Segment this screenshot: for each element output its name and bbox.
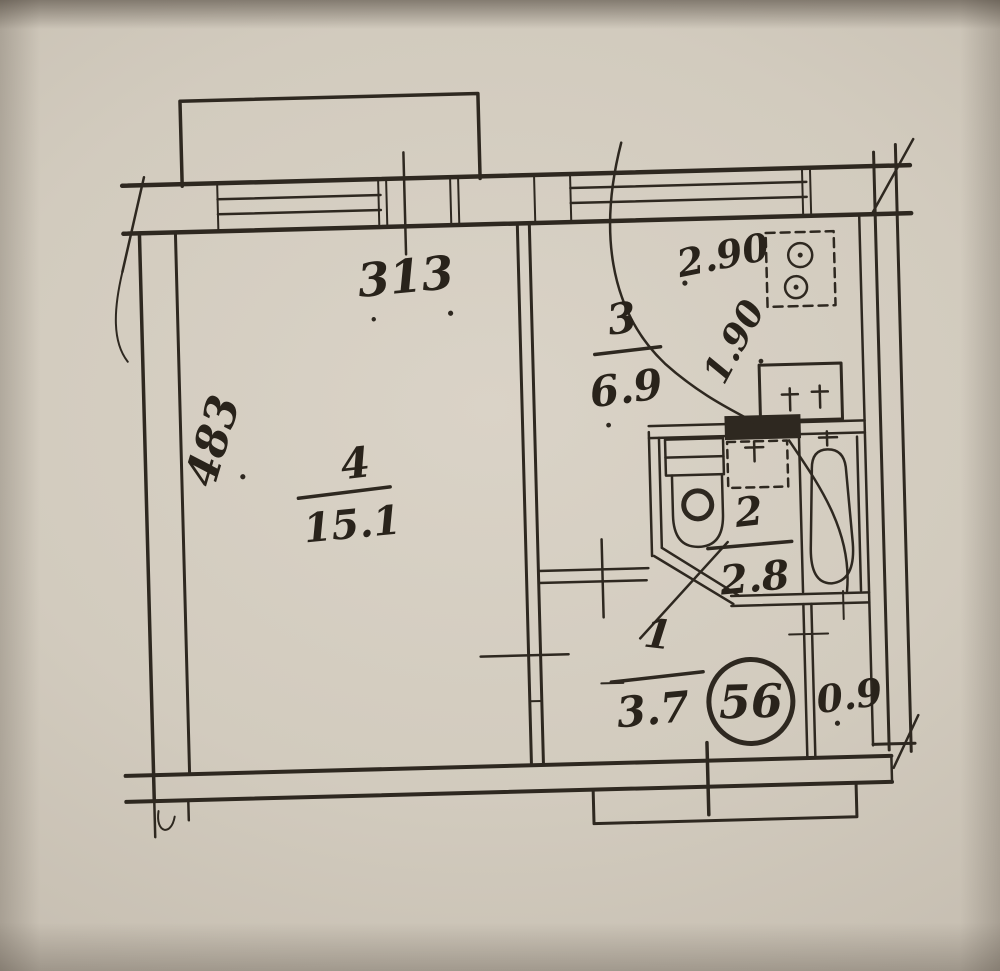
floor-plan-svg: 313 483 2.90 1.90 0.9 4 15.1 3 6.9 2 2.8… (0, 0, 1000, 971)
bathroom-area: 2.8 (717, 551, 792, 605)
washbasin-icon (727, 440, 788, 488)
hallway-label: 1 3.7 (609, 608, 704, 737)
corner-ticks (112, 139, 930, 788)
dim-kitchen-width-label: 2.90 (672, 223, 773, 286)
living-room-area: 15.1 (301, 496, 402, 552)
kitchen-window (570, 168, 811, 222)
left-exterior-wall (139, 232, 190, 799)
dim-window-wall-label: 313 (355, 245, 456, 308)
living-room-label: 4 15.1 (297, 436, 403, 552)
apartment-number-badge: 56 (708, 658, 794, 744)
vent-shaft (724, 414, 801, 440)
apartment-number: 56 (718, 674, 783, 730)
stove-icon (766, 231, 836, 307)
right-exterior-wall (857, 144, 915, 752)
toilet-icon (665, 438, 726, 547)
balcony-door-opening (450, 175, 535, 225)
bathtub-icon (799, 431, 861, 592)
living-room-number: 4 (338, 437, 373, 489)
hallway-number: 1 (641, 610, 674, 660)
bathroom-number: 2 (731, 487, 765, 537)
closet-area-label: 0.9 (814, 669, 885, 722)
kitchen-label: 3 6.9 (585, 291, 666, 417)
bathroom-label: 2 2.8 (706, 486, 793, 605)
kitchen-area: 6.9 (587, 359, 666, 417)
kitchen-hall-wall (538, 538, 650, 619)
kitchen-sink-icon (759, 363, 842, 421)
photographed-floor-plan: 313 483 2.90 1.90 0.9 4 15.1 3 6.9 2 2.8… (0, 0, 1000, 971)
bottom-exterior-wall (125, 738, 893, 838)
dim-room-depth-label: 483 (176, 390, 251, 493)
living-room-window (217, 179, 387, 231)
hallway-area: 3.7 (614, 682, 691, 738)
kitchen-number: 3 (603, 292, 640, 345)
room-partition-wall (469, 221, 625, 767)
dim-kitchen-wall-label: 1.90 (695, 293, 774, 390)
balcony-outline (180, 93, 480, 186)
